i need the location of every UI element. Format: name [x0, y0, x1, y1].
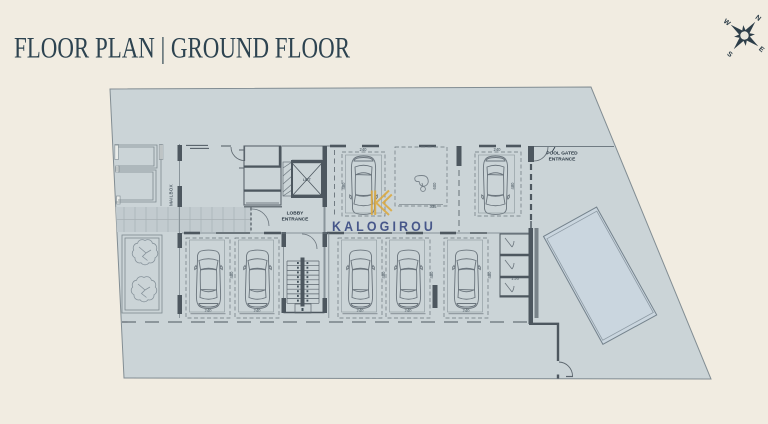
svg-text:POOL GATED: POOL GATED [546, 151, 578, 157]
svg-text:KALOGIROU: KALOGIROU [332, 219, 436, 234]
svg-text:480: 480 [229, 271, 234, 279]
svg-text:LOBBY: LOBBY [287, 211, 305, 217]
svg-text:ENTRANCE: ENTRANCE [282, 217, 309, 223]
svg-text:1.20: 1.20 [511, 276, 520, 281]
svg-text:600: 600 [432, 182, 437, 190]
svg-text:MAILBOX: MAILBOX [169, 184, 174, 206]
svg-text:240: 240 [360, 147, 368, 152]
svg-text:FLOOR PLAN | GROUND FLOOR: FLOOR PLAN | GROUND FLOOR [14, 32, 350, 65]
svg-text:480: 480 [429, 271, 434, 279]
svg-text:480: 480 [381, 271, 386, 279]
svg-text:ENTRANCE: ENTRANCE [549, 157, 576, 163]
svg-text:480: 480 [487, 271, 492, 279]
svg-text:240: 240 [494, 147, 502, 152]
svg-text:LIFT: LIFT [303, 177, 312, 182]
